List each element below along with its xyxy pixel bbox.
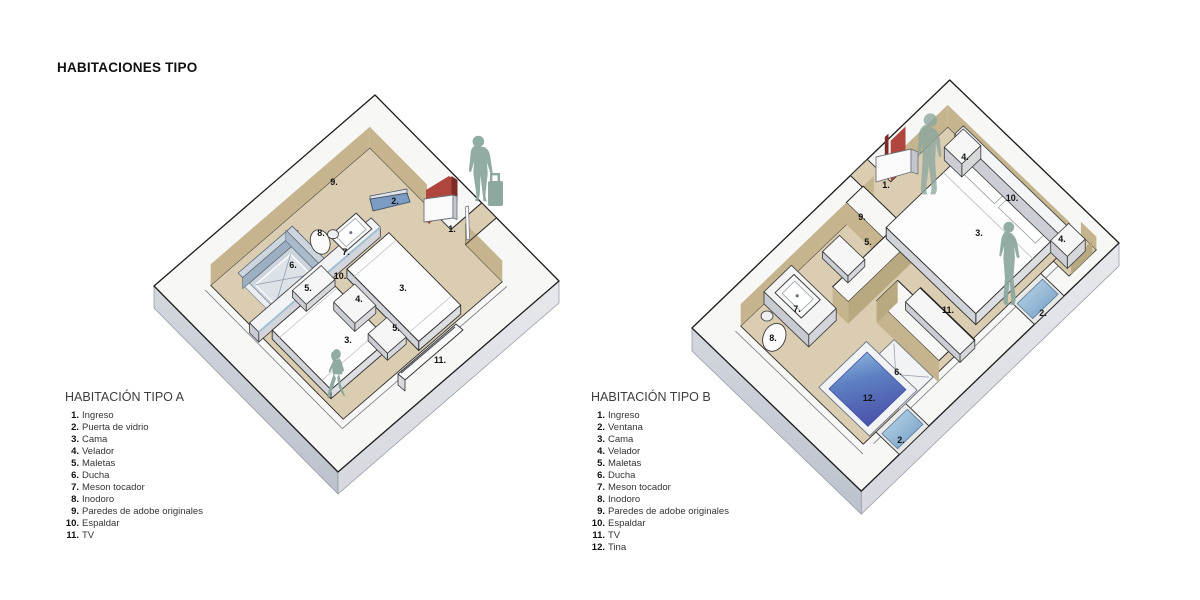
svg-text:2.: 2. xyxy=(897,435,905,445)
svg-text:1.: 1. xyxy=(882,180,890,190)
svg-text:9.: 9. xyxy=(858,212,866,222)
svg-text:4.: 4. xyxy=(1058,234,1066,244)
svg-text:5.: 5. xyxy=(864,237,872,247)
svg-text:6.: 6. xyxy=(894,367,902,377)
svg-text:12.: 12. xyxy=(863,393,876,403)
svg-text:7.: 7. xyxy=(793,304,801,314)
svg-text:11.: 11. xyxy=(434,355,446,365)
svg-text:10.: 10. xyxy=(1006,193,1019,203)
svg-text:6.: 6. xyxy=(289,260,297,270)
svg-text:7.: 7. xyxy=(342,247,350,257)
svg-text:4.: 4. xyxy=(961,152,969,162)
svg-text:11.: 11. xyxy=(942,305,954,315)
svg-text:10.: 10. xyxy=(334,271,347,281)
svg-text:1.: 1. xyxy=(448,224,456,234)
svg-text:5.: 5. xyxy=(392,323,400,333)
svg-text:4.: 4. xyxy=(355,294,363,304)
svg-text:9.: 9. xyxy=(330,177,338,187)
svg-text:8.: 8. xyxy=(317,228,325,238)
svg-text:2.: 2. xyxy=(391,196,399,206)
svg-text:3.: 3. xyxy=(975,228,983,238)
svg-text:5.: 5. xyxy=(304,283,312,293)
svg-text:8.: 8. xyxy=(769,333,777,343)
svg-text:2.: 2. xyxy=(1039,308,1047,318)
svg-text:3.: 3. xyxy=(344,335,352,345)
svg-text:3.: 3. xyxy=(399,283,407,293)
